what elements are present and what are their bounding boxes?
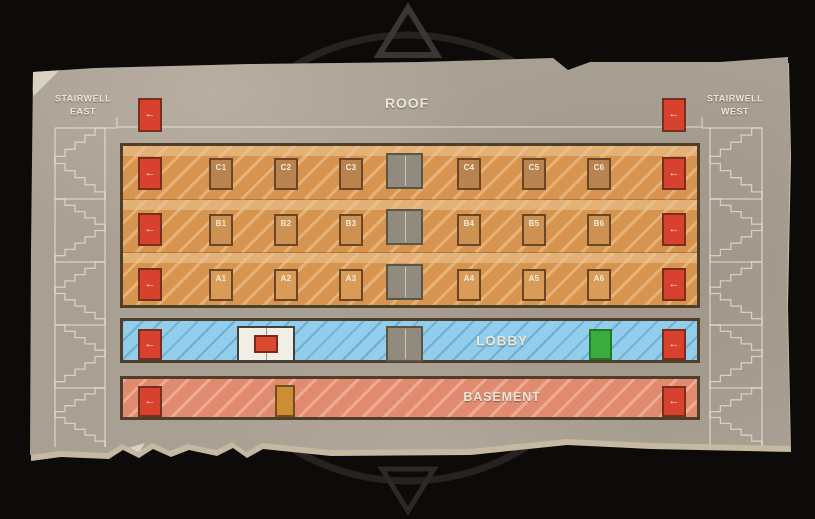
floor-c-elevator <box>386 153 423 189</box>
floor-a-exit-door-east: ← <box>138 268 162 301</box>
floor-b-exit-door-east: ← <box>138 213 162 246</box>
room-door-a5: A5 <box>522 269 546 301</box>
room-door-b5: B5 <box>522 214 546 246</box>
floor-b-elevator <box>386 209 423 245</box>
lobby-label: LOBBY <box>476 334 528 349</box>
room-door-b2: B2 <box>274 214 298 246</box>
room-door-c2: C2 <box>274 158 298 190</box>
lobby-main-entrance <box>237 326 295 362</box>
room-door-c6: C6 <box>587 158 611 190</box>
entrance-marker-icon <box>254 335 278 353</box>
map-paper: ROOF STAIRWELL EAST STAIRWELL WEST ← ← ←… <box>0 0 815 519</box>
room-door-b3: B3 <box>339 214 363 246</box>
lobby-green-door <box>589 329 612 360</box>
basement-exit-door-east: ← <box>138 386 162 417</box>
stairwell-west-line1: STAIRWELL <box>707 93 763 106</box>
hotel-floorplan-map: ROOF STAIRWELL EAST STAIRWELL WEST ← ← ←… <box>0 0 815 519</box>
room-door-c4: C4 <box>457 158 481 190</box>
stairwell-west-line2: WEST <box>707 105 763 118</box>
basement-label: BASEMENT <box>463 390 540 404</box>
room-door-a3: A3 <box>339 269 363 301</box>
roof-label: ROOF <box>385 95 429 111</box>
basement-exit-door-west: ← <box>662 386 686 417</box>
room-door-b4: B4 <box>457 214 481 246</box>
floor-a-elevator <box>386 264 423 300</box>
lobby-exit-door-east: ← <box>138 329 162 360</box>
roof-exit-door-east: ← <box>138 98 162 132</box>
room-door-b6: B6 <box>587 214 611 246</box>
room-door-a1: A1 <box>209 269 233 301</box>
basement-band <box>120 376 700 420</box>
room-door-c1: C1 <box>209 158 233 190</box>
room-door-a2: A2 <box>274 269 298 301</box>
roof-exit-door-west: ← <box>662 98 686 132</box>
lobby-elevator <box>386 326 423 362</box>
lobby-exit-door-west: ← <box>662 329 686 360</box>
floor-c-exit-door-east: ← <box>138 157 162 190</box>
stairwell-east-line2: EAST <box>55 105 111 118</box>
stairwell-east-line1: STAIRWELL <box>55 93 111 106</box>
floor-b-exit-door-west: ← <box>662 213 686 246</box>
room-door-b1: B1 <box>209 214 233 246</box>
floor-a-exit-door-west: ← <box>662 268 686 301</box>
compass-south-pointer-icon <box>382 469 434 511</box>
room-door-a4: A4 <box>457 269 481 301</box>
room-door-a6: A6 <box>587 269 611 301</box>
room-door-c5: C5 <box>522 158 546 190</box>
basement-service-door <box>275 385 295 417</box>
stairwell-east-label: STAIRWELL EAST <box>55 93 111 118</box>
floor-c-exit-door-west: ← <box>662 157 686 190</box>
stairwell-west-label: STAIRWELL WEST <box>707 93 763 118</box>
room-door-c3: C3 <box>339 158 363 190</box>
